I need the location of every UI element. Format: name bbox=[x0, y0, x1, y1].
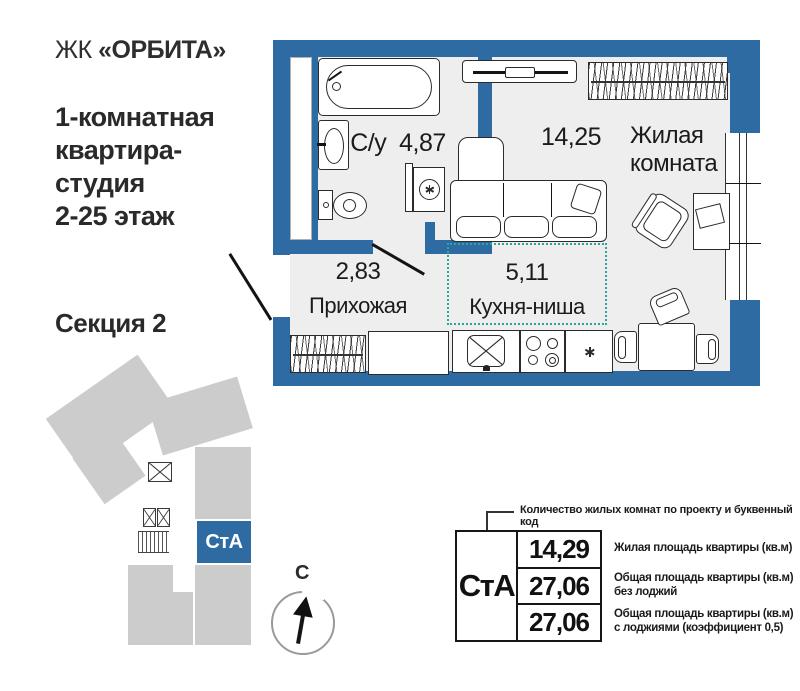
sofa-cushion bbox=[552, 216, 597, 238]
elevator-icon bbox=[157, 508, 170, 527]
block-notch bbox=[173, 565, 193, 592]
kitchen-faucet bbox=[483, 365, 490, 371]
window-glazing bbox=[739, 133, 747, 300]
kitchen-name: Кухня-ниша bbox=[447, 294, 607, 320]
callout-bracket-h bbox=[486, 511, 514, 513]
bathtub-icon bbox=[318, 58, 440, 116]
sofa-cushion bbox=[456, 216, 501, 238]
building-block bbox=[195, 447, 251, 519]
burner bbox=[545, 353, 559, 367]
spec-row-desc: Общая площадь квартиры (кв.м) без лоджий bbox=[614, 571, 793, 599]
elevator-icon bbox=[143, 508, 156, 527]
wall-stub bbox=[425, 222, 435, 240]
spec-value: 27,06 bbox=[529, 571, 589, 602]
callout-bracket-v bbox=[486, 511, 488, 531]
entrance-leader-line bbox=[229, 253, 272, 320]
title-line: 1-комнатная bbox=[55, 101, 214, 134]
wall-left-upper bbox=[273, 40, 290, 255]
unit-code-label: СтА bbox=[205, 531, 242, 554]
desc-line: Общая площадь квартиры (кв.м) bbox=[614, 607, 793, 621]
table-callout: Количество жилых комнат по проекту и бук… bbox=[520, 504, 798, 528]
bathroom-name: С/у bbox=[350, 129, 386, 157]
unit-marker: СтА bbox=[197, 521, 251, 563]
stove-icon bbox=[520, 330, 565, 373]
chair-icon bbox=[647, 286, 690, 327]
hallway-label: 2,83 Прихожая bbox=[283, 258, 433, 319]
burner bbox=[547, 338, 558, 349]
building-block bbox=[147, 376, 253, 455]
toilet-icon bbox=[333, 192, 367, 219]
hallway-name: Прихожая bbox=[283, 293, 433, 319]
office-chair-icon bbox=[632, 190, 692, 251]
spec-value: 27,06 bbox=[529, 607, 589, 638]
floorplan-page: ЖК «ОРБИТА» 1-комнатная квартира- студия… bbox=[0, 0, 800, 691]
wardrobe-icon bbox=[588, 62, 728, 100]
shaft bbox=[290, 57, 312, 240]
washing-machine-icon bbox=[413, 167, 445, 212]
stairs-icon bbox=[138, 531, 169, 553]
chair-back bbox=[708, 339, 716, 360]
toilet-tank bbox=[318, 190, 333, 220]
spec-row-desc: Жилая площадь квартиры (кв.м) bbox=[614, 541, 792, 555]
spec-unit-code: СтА bbox=[459, 568, 514, 604]
window-tick bbox=[726, 243, 761, 244]
desc-line: Общая площадь квартиры (кв.м) bbox=[614, 571, 793, 585]
living-name-line: комната bbox=[630, 150, 717, 178]
chair-icon bbox=[614, 331, 637, 363]
hallway-cabinet bbox=[368, 331, 449, 375]
coat-rack-icon bbox=[290, 335, 366, 373]
window-icon bbox=[725, 133, 760, 300]
burner bbox=[526, 336, 541, 351]
section-diagram: СтА bbox=[50, 355, 265, 650]
wall-bottom bbox=[273, 371, 760, 386]
spec-value-cell: 27,06 bbox=[518, 605, 600, 640]
spec-unit-cell: СтА bbox=[457, 532, 518, 640]
complex-name: «ОРБИТА» bbox=[98, 36, 226, 64]
washer-panel bbox=[405, 163, 413, 212]
complex-title: ЖК «ОРБИТА» bbox=[55, 36, 226, 65]
spec-row-desc: Общая площадь квартиры (кв.м) с лоджиями… bbox=[614, 607, 793, 635]
desc-line: Жилая площадь квартиры (кв.м) bbox=[614, 541, 792, 555]
chair-back bbox=[655, 291, 680, 308]
tv-box bbox=[505, 67, 535, 78]
title-line: студия bbox=[55, 167, 214, 200]
burner bbox=[528, 355, 538, 365]
wall-top bbox=[273, 40, 760, 57]
living-name-line: Жилая bbox=[630, 122, 717, 150]
arrow-stem bbox=[296, 614, 305, 644]
window-tick bbox=[726, 183, 761, 184]
spec-value: 14,29 bbox=[529, 534, 589, 565]
wardrobe-rod bbox=[591, 81, 725, 83]
desc-line: без лоджий bbox=[614, 585, 793, 599]
coat-rack-rod bbox=[293, 354, 363, 356]
toilet-button bbox=[323, 202, 329, 208]
north-label: С bbox=[295, 562, 309, 585]
section-label: Секция 2 bbox=[55, 308, 166, 339]
living-area-value: 14,25 bbox=[531, 122, 611, 152]
spec-value-cell: 27,06 bbox=[518, 569, 600, 606]
tv-stand-icon bbox=[462, 60, 577, 83]
wall-hallway-top-left bbox=[290, 240, 373, 254]
floorplan: С/у 4,87 14,25 Жилая комната 2,83 Прихож… bbox=[273, 40, 760, 386]
building-block bbox=[195, 565, 251, 645]
fridge-fan-icon bbox=[585, 347, 595, 357]
page-title: 1-комнатная квартира- студия 2-25 этаж bbox=[55, 101, 214, 233]
wall-left-lower bbox=[273, 317, 290, 386]
spec-table: СтА 14,29 27,06 27,06 bbox=[455, 530, 602, 642]
fridge-icon bbox=[565, 330, 613, 373]
kitchen-sink-unit bbox=[452, 330, 520, 373]
toilet-bowl bbox=[343, 199, 356, 212]
complex-prefix: ЖК bbox=[55, 36, 92, 64]
bathroom-area: 4,87 bbox=[399, 129, 446, 157]
title-line: квартира- bbox=[55, 134, 214, 167]
washer-fan-icon bbox=[425, 185, 434, 194]
hallway-area: 2,83 bbox=[283, 258, 433, 287]
dining-table-icon bbox=[638, 323, 695, 371]
bath-faucet bbox=[332, 82, 341, 91]
chair-icon bbox=[696, 334, 719, 364]
bathroom-label: С/у 4,87 bbox=[318, 128, 478, 158]
compass-icon: С bbox=[260, 560, 350, 665]
sofa-cushion bbox=[504, 216, 549, 238]
sofa-divider bbox=[503, 183, 504, 217]
spec-values-column: 14,29 27,06 27,06 bbox=[518, 532, 600, 640]
title-line: 2-25 этаж bbox=[55, 200, 214, 233]
kitchen-label: 5,11 Кухня-ниша bbox=[447, 259, 607, 320]
desc-line: с лоджиями (коэффициент 0,5) bbox=[614, 621, 793, 635]
spec-value-cell: 14,29 bbox=[518, 532, 600, 569]
living-room-label: Жилая комната bbox=[630, 122, 717, 178]
elevator-icon bbox=[148, 462, 172, 482]
chair-back bbox=[618, 336, 626, 359]
sofa-divider bbox=[551, 183, 552, 217]
kitchen-area: 5,11 bbox=[447, 259, 607, 288]
kitchen-sink-icon bbox=[467, 335, 505, 367]
